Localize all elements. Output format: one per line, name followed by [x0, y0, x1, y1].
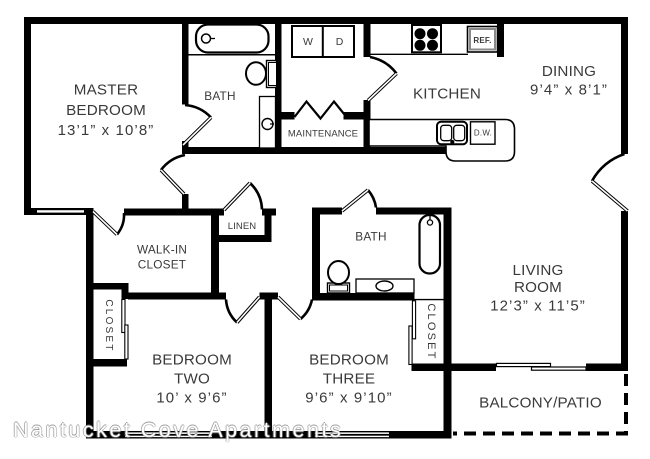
svg-text:9’4” x 8’1”: 9’4” x 8’1” — [530, 82, 608, 99]
svg-text:9’6” x 9’10”: 9’6” x 9’10” — [305, 390, 392, 407]
svg-text:BATH: BATH — [204, 89, 235, 103]
svg-text:CLOSET: CLOSET — [138, 258, 186, 272]
svg-text:BALCONY/PATIO: BALCONY/PATIO — [479, 395, 602, 412]
svg-text:LIVING: LIVING — [513, 262, 564, 279]
svg-text:REF.: REF. — [473, 36, 491, 45]
svg-text:BATH: BATH — [355, 230, 386, 244]
svg-text:MAINTENANCE: MAINTENANCE — [288, 129, 358, 140]
svg-text:13’1” x 10’8”: 13’1” x 10’8” — [58, 122, 155, 139]
svg-text:DINING: DINING — [542, 63, 596, 80]
svg-text:D: D — [336, 36, 344, 48]
svg-text:ROOM: ROOM — [514, 279, 562, 296]
svg-text:BEDROOM: BEDROOM — [66, 102, 146, 119]
svg-text:KITCHEN: KITCHEN — [413, 86, 481, 103]
svg-text:THREE: THREE — [323, 371, 375, 388]
svg-text:10’ x 9’6”: 10’ x 9’6” — [156, 390, 227, 407]
svg-text:W: W — [303, 36, 313, 48]
svg-text:BEDROOM: BEDROOM — [152, 352, 232, 369]
svg-text:LINEN: LINEN — [228, 221, 257, 232]
svg-text:CLOSET: CLOSET — [103, 299, 114, 352]
svg-text:TWO: TWO — [174, 371, 210, 388]
svg-text:D.W.: D.W. — [474, 129, 492, 138]
svg-text:CLOSET: CLOSET — [425, 303, 437, 360]
svg-text:12’3” x 11’5”: 12’3” x 11’5” — [490, 298, 586, 315]
svg-text:WALK-IN: WALK-IN — [137, 243, 187, 257]
svg-text:MASTER: MASTER — [74, 82, 139, 99]
svg-text:BEDROOM: BEDROOM — [309, 352, 389, 369]
